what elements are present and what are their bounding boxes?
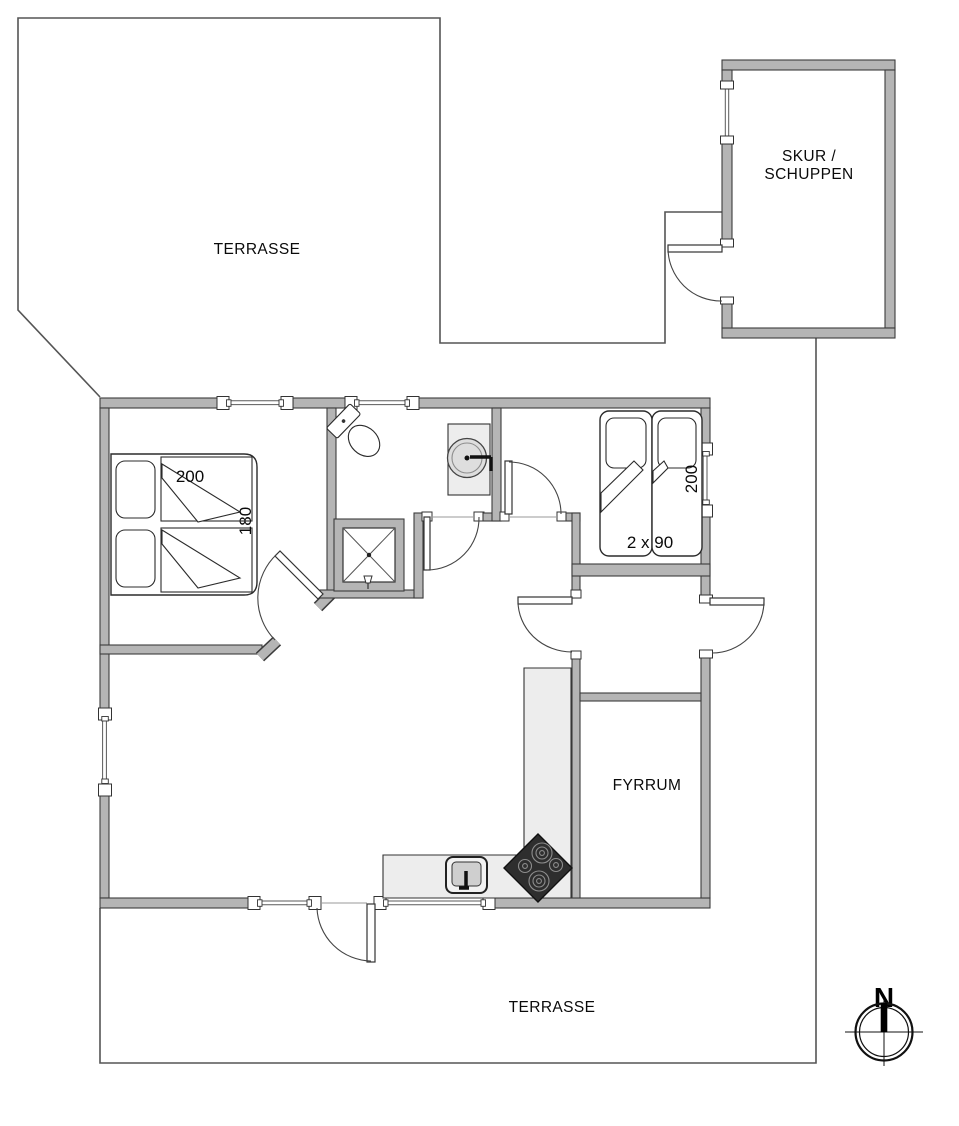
terrace-top-label: TERRASSE	[214, 241, 301, 258]
door-bathroom	[424, 517, 479, 570]
kitchen-sink	[446, 857, 487, 893]
pillow	[606, 418, 646, 468]
shower-drain	[364, 576, 372, 583]
door-vestibule-living	[518, 597, 572, 652]
dim-single-beds: 2 x 90	[627, 533, 673, 552]
shed-walls	[722, 60, 895, 338]
door-bedroom-1	[258, 551, 323, 640]
floor-plan-svg: 200 180 2 x 90 200	[0, 0, 959, 1126]
dim-double-bed-length: 180	[236, 507, 255, 535]
compass-needle	[881, 1003, 888, 1032]
shower	[334, 519, 404, 591]
pillow	[658, 418, 696, 468]
window-shed	[721, 81, 734, 144]
window-north-bedroom	[217, 397, 293, 410]
door-south-terrace	[317, 903, 375, 962]
window-south-living-west	[248, 897, 321, 910]
window-west-living	[99, 708, 112, 796]
shed-label-line2: SCHUPPEN	[764, 166, 853, 183]
dim-single-bed-length: 200	[682, 465, 701, 493]
boiler-room-label: FYRRUM	[613, 777, 682, 794]
pillow	[116, 461, 155, 518]
washbasin	[448, 424, 492, 495]
terrace-top-outline	[18, 18, 722, 397]
pillow	[116, 530, 155, 587]
terrace-bottom-label: TERRASSE	[509, 999, 596, 1016]
compass: N	[845, 982, 923, 1066]
dim-double-bed-width: 200	[176, 467, 204, 486]
window-north-bathroom	[345, 397, 419, 410]
door-east-entrance	[700, 595, 765, 658]
floor-plan: 200 180 2 x 90 200	[0, 0, 959, 1126]
door-bedroom-2	[505, 461, 561, 517]
door-shed	[668, 239, 734, 304]
shed-label-line1: SKUR /	[782, 148, 836, 165]
